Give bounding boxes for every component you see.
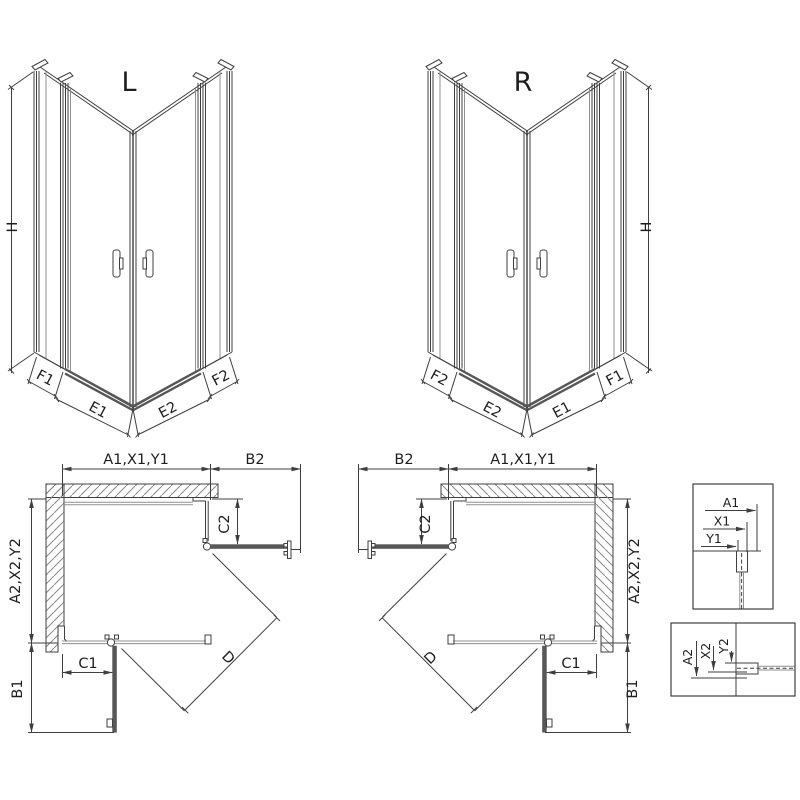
iso-right-title: R [514,67,533,98]
iso-view-right: R H F2 E2 E1 F1 [421,60,655,438]
plan-right-c2-label: C2 [418,514,434,533]
technical-drawing-page: L H F1 E1 E2 F2 R H F2 E2 E1 F1 A1,X1,Y1… [0,0,800,800]
iso-view-left: L H F1 E1 E2 F2 [5,60,239,438]
detail-bottom-x2-label: X2 [698,643,713,660]
plan-right-b1-label: B1 [625,679,641,698]
iso-left-e1-label: E1 [86,399,110,422]
detail-box-top: A1 X1 Y1 [693,484,773,609]
plan-left-diagonal-label: D [218,649,237,668]
detail-box-bottom: A2 X2 Y2 [671,623,795,696]
plan-left-b1-label: B1 [10,679,26,698]
plan-left-width-label: A1,X1,Y1 [103,452,169,468]
plan-right-b2-label: B2 [394,452,413,468]
detail-top-a1-label: A1 [723,495,740,510]
plan-left-c2-label: C2 [217,514,233,533]
iso-left-height-label: H [5,222,21,233]
plan-right-c1-label: C1 [561,656,580,672]
iso-left-e2-label: E2 [156,399,180,422]
detail-top-x1-label: X1 [714,514,731,529]
plan-right-diagonal-label: D [422,649,441,668]
iso-right-height-label: H [639,222,655,233]
detail-top-y1-label: Y1 [705,531,722,546]
plan-view-left: A1,X1,Y1 B2 C2 A2,X2,Y2 C1 B1 D [8,452,301,733]
iso-left-title: L [121,67,136,98]
iso-right-e1-label: E1 [550,399,574,422]
plan-left-c1-label: C1 [78,656,97,672]
plan-view-right: A1,X1,Y1 B2 C2 A2,X2,Y2 C1 B1 D [359,452,644,733]
iso-right-e2-label: E2 [480,399,504,422]
plan-right-width-label: A1,X1,Y1 [490,452,556,468]
detail-bottom-y2-label: Y2 [716,638,731,655]
plan-right-depth-label: A2,X2,Y2 [627,538,643,604]
plan-left-b2-label: B2 [245,452,264,468]
shower-enclosure-diagram: L H F1 E1 E2 F2 R H F2 E2 E1 F1 A1,X1,Y1… [0,0,800,800]
plan-left-depth-label: A2,X2,Y2 [8,538,24,604]
detail-bottom-a2-label: A2 [680,649,695,666]
